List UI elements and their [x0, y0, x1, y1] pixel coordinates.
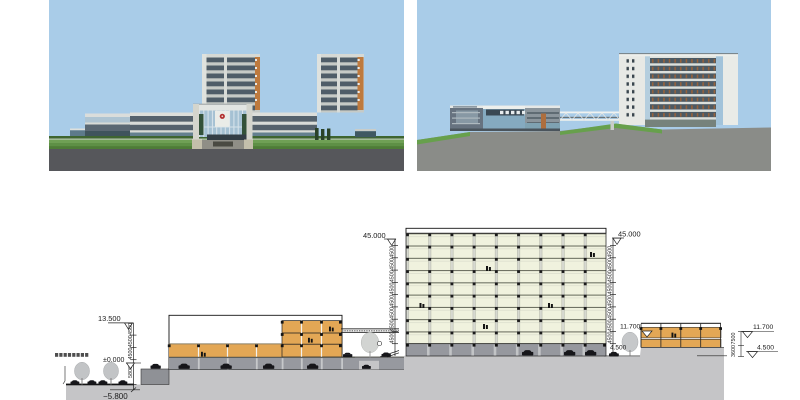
svg-text:3600: 3600 [731, 345, 737, 357]
svg-text:4500: 4500 [607, 283, 613, 295]
svg-text:4500: 4500 [607, 258, 613, 270]
svg-text:4500: 4500 [607, 295, 613, 307]
svg-text:4.500: 4.500 [757, 345, 774, 352]
svg-text:4500: 4500 [128, 323, 134, 335]
svg-text:45.000: 45.000 [363, 231, 386, 240]
svg-text:±0.000: ±0.000 [103, 357, 124, 364]
svg-text:7500: 7500 [731, 333, 737, 345]
svg-text:−5.800: −5.800 [103, 392, 128, 400]
svg-text:4.500: 4.500 [610, 344, 627, 351]
svg-text:4500: 4500 [389, 295, 395, 307]
svg-text:45.000: 45.000 [618, 230, 641, 239]
svg-text:4500: 4500 [607, 270, 613, 282]
svg-text:4500: 4500 [389, 319, 395, 331]
svg-text:4500: 4500 [389, 258, 395, 270]
svg-text:4500: 4500 [389, 332, 395, 344]
svg-text:4500: 4500 [389, 246, 395, 258]
svg-text:4500: 4500 [128, 335, 134, 347]
svg-text:4500: 4500 [389, 307, 395, 319]
svg-text:4500: 4500 [607, 319, 613, 331]
svg-text:13.500: 13.500 [98, 314, 121, 323]
svg-text:4500: 4500 [389, 270, 395, 282]
svg-text:4500: 4500 [607, 332, 613, 344]
svg-text:11.700: 11.700 [620, 324, 641, 331]
svg-text:4500: 4500 [607, 246, 613, 258]
svg-text:4500: 4500 [389, 283, 395, 295]
svg-text:4500: 4500 [128, 348, 134, 360]
svg-text:11.700: 11.700 [753, 324, 774, 331]
svg-text:4500: 4500 [607, 307, 613, 319]
